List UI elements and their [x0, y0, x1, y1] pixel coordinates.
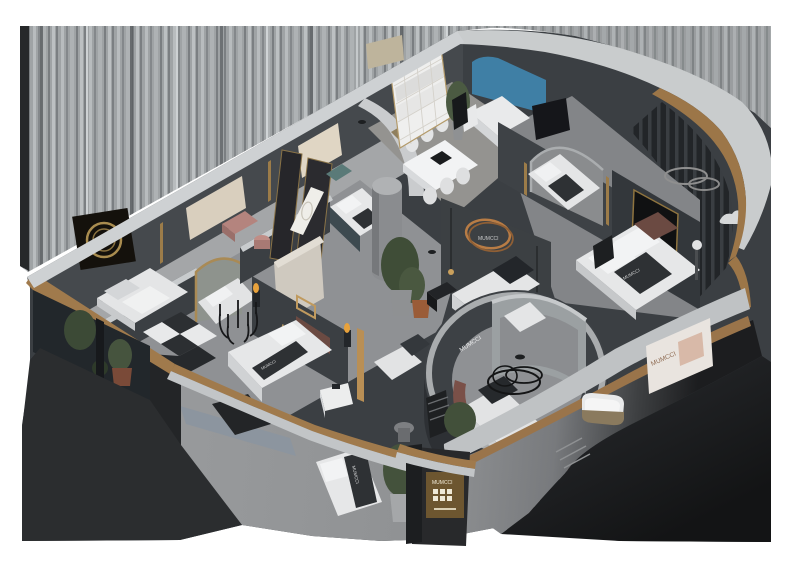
svg-text:MUMCCI: MUMCCI — [478, 236, 499, 242]
svg-text:MUMCCI: MUMCCI — [432, 480, 453, 486]
